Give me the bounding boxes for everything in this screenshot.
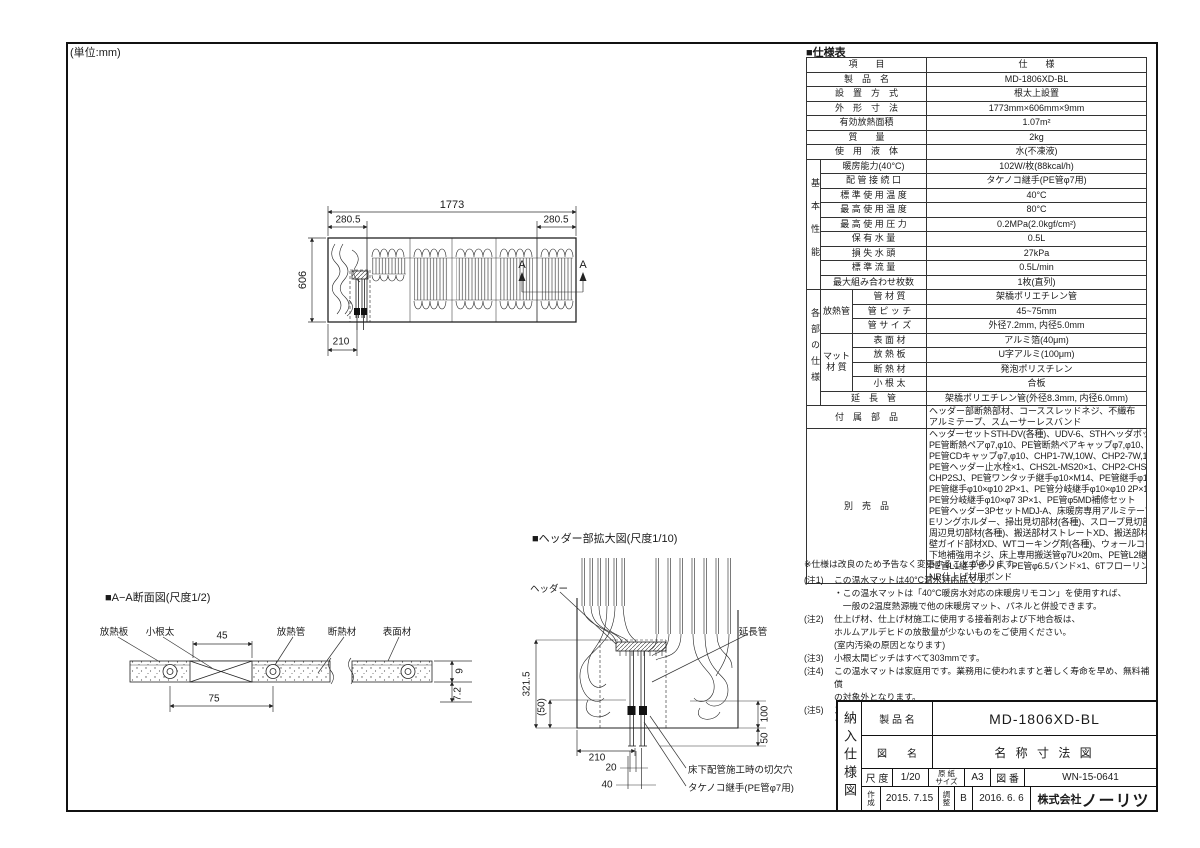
plan-dim-height: 606 [297,271,309,289]
table-row: 基本性能暖房能力(40°C)102W/枚(88kcal/h) [807,159,1147,174]
extension-pipe-label: 延長管 [739,624,768,638]
table-row: 最大組み合わせ枚数1枚(直列) [807,275,1147,290]
company-logo: 株式会社ノーリツ [1030,787,1156,810]
drawing-number-value: WN-15-0641 [1024,769,1156,786]
header-dim-40: 40 [601,780,612,791]
cutout-label: 床下配管施工時の切欠穴 [688,762,793,776]
accessories-value: ヘッダー部断熱部材、コーススレッドネジ、不織布 アルミテープ、スムーサーレスバン… [927,406,1147,429]
section-label-heat-pipe: 放熱管 [277,624,306,638]
header-label: ヘッダー [530,581,568,595]
product-name-value: MD-1806XD-BL [927,72,1147,87]
table-row: 配 管 接 続 口タケノコ継手(PE管φ7用) [807,174,1147,189]
drawing-sheet: (単位:mm) 1773 280.5 280.5 606 210 A A ■A−… [0,0,1200,848]
plan-dim-header-offset: 210 [333,337,350,348]
created-label: 作 成 [862,787,880,810]
note-3: (注3)小根太間ピッチはすべて303mmです。 [804,652,1156,665]
section-label-heat-plate: 放熱板 [100,624,129,638]
header-detail-linework [577,558,738,746]
group-basic-performance: 基本性能 [807,159,821,290]
section-label-surface: 表面材 [383,624,412,638]
header-dim-50: 50 [760,732,771,743]
table-row: 標 準 流 量0.5L/min [807,261,1147,276]
title-block: 納入仕様図 製 品 名 MD-1806XD-BL 図 名 名 称 寸 法 図 尺… [836,700,1158,812]
table-row: 管 ピ ッ チ45~75mm [807,304,1147,319]
header-dim-321-5: 321.5 [522,671,533,696]
header-dim-20: 20 [605,763,616,774]
spec-disclaimer: ※仕様は改良のため予告なく変更することがあります。 [804,558,1156,571]
group-mat-material: マット 材 質 [821,333,853,391]
note-2: (注2)仕上げ材、仕上げ材施工に使用する接着剤および下地合板は、 ホルムアルデヒ… [804,613,1156,652]
table-row: 設 置 方 式根太上設置 [807,87,1147,102]
revised-date: 2016. 6. 6 [972,787,1030,810]
table-row: 最 高 使 用 圧 力0.2MPa(2.0kgf/cm²) [807,217,1147,232]
drawing-name-value: 名 称 寸 法 図 [932,736,1156,768]
table-row: 損 失 水 頭27kPa [807,246,1147,261]
section-dim-45: 45 [216,631,227,642]
table-row: 断 熱 材発泡ポリスチレン [807,362,1147,377]
product-name-label: 製 品 名 [862,702,932,735]
group-parts-spec: 各部の仕様 [807,290,821,406]
drawing-name-label: 図 名 [862,736,932,768]
header-dim-210: 210 [589,753,606,764]
table-row: 管 サ イ ズ外径7.2mm, 内径5.0mm [807,319,1147,334]
table-row: 小 根 太合板 [807,377,1147,392]
section-label-insulation: 断熱材 [328,624,357,638]
table-row: 付 属 部 品ヘッダー部断熱部材、コーススレッドネジ、不織布 アルミテープ、スム… [807,406,1147,429]
company-prefix: 株式会社 [1037,791,1081,807]
scale-value: 1/20 [892,769,928,786]
revised-label: 調 整 [938,787,954,810]
unit-note: (単位:mm) [70,44,121,60]
fitting-label: タケノコ継手(PE管φ7用) [688,780,794,794]
group-heat-pipe: 放熱管 [821,290,853,334]
title-block-product-value: MD-1806XD-BL [932,702,1156,735]
table-row: 質 量2kg [807,130,1147,145]
section-dim-7-2: 7.2 [453,687,464,701]
plan-dim-total-width: 1773 [440,199,464,211]
created-date: 2015. 7.15 [880,787,938,810]
table-row: 有効放熱面積1.07m² [807,116,1147,131]
header-dim-100: 100 [760,706,771,723]
table-row: 最 高 使 用 温 度80°C [807,203,1147,218]
table-row: マット 材 質表 面 材アルミ箔(40μm) [807,333,1147,348]
header-detail-title: ■ヘッダー部拡大図(尺度1/10) [532,530,677,546]
note-1: (注1)この温水マットは40°C温水対応品です。 ・この温水マットは「40°C暖… [804,574,1156,613]
table-row: 標 準 使 用 温 度40°C [807,188,1147,203]
header-detail-dimensions [536,592,766,789]
section-marker-a2: A [579,259,586,271]
spec-header-item: 項 目 [807,58,927,73]
section-label-small-joist: 小根太 [146,624,175,638]
header-dim-50-paren: (50) [537,698,548,716]
table-row: 製 品 名MD-1806XD-BL [807,72,1147,87]
spec-header-value: 仕 様 [927,58,1147,73]
plan-view-linework [328,238,576,330]
section-title: ■A−A断面図(尺度1/2) [105,589,210,605]
company-name: ノーリツ [1081,787,1149,811]
table-row: 各部の仕様放熱管管 材 質架橋ポリエチレン管 [807,290,1147,305]
plan-dim-right-cap: 280.5 [543,215,568,226]
scale-label: 尺 度 [862,769,892,786]
section-marker-a1: A [518,259,525,271]
paper-size-label: 原 紙 サイズ [928,769,964,786]
table-row: 放 熱 板U字アルミ(100μm) [807,348,1147,363]
table-row: 保 有 水 量0.5L [807,232,1147,247]
spec-table: 項 目仕 様 製 品 名MD-1806XD-BL 設 置 方 式根太上設置 外 … [806,57,1147,584]
table-row: 延 長 管架橋ポリエチレン管(外径8.3mm, 内径6.0mm) [807,391,1147,406]
section-dim-75: 75 [208,694,219,705]
doc-type-cell: 納入仕様図 [838,702,862,810]
plan-dim-left-cap: 280.5 [335,215,360,226]
table-row: 項 目仕 様 [807,58,1147,73]
drawing-number-label: 図 番 [990,769,1024,786]
paper-size-value: A3 [964,769,990,786]
section-view-linework [130,658,432,684]
section-dim-9: 9 [455,668,466,674]
table-row: 外 形 寸 法1773mm×606mm×9mm [807,101,1147,116]
note-4: (注4)この温水マットは家庭用です。業務用に使われますと著しく寿命を早め、無料補… [804,665,1156,704]
table-row: 使 用 液 体水(不凍液) [807,145,1147,160]
revision-code: B [954,787,972,810]
